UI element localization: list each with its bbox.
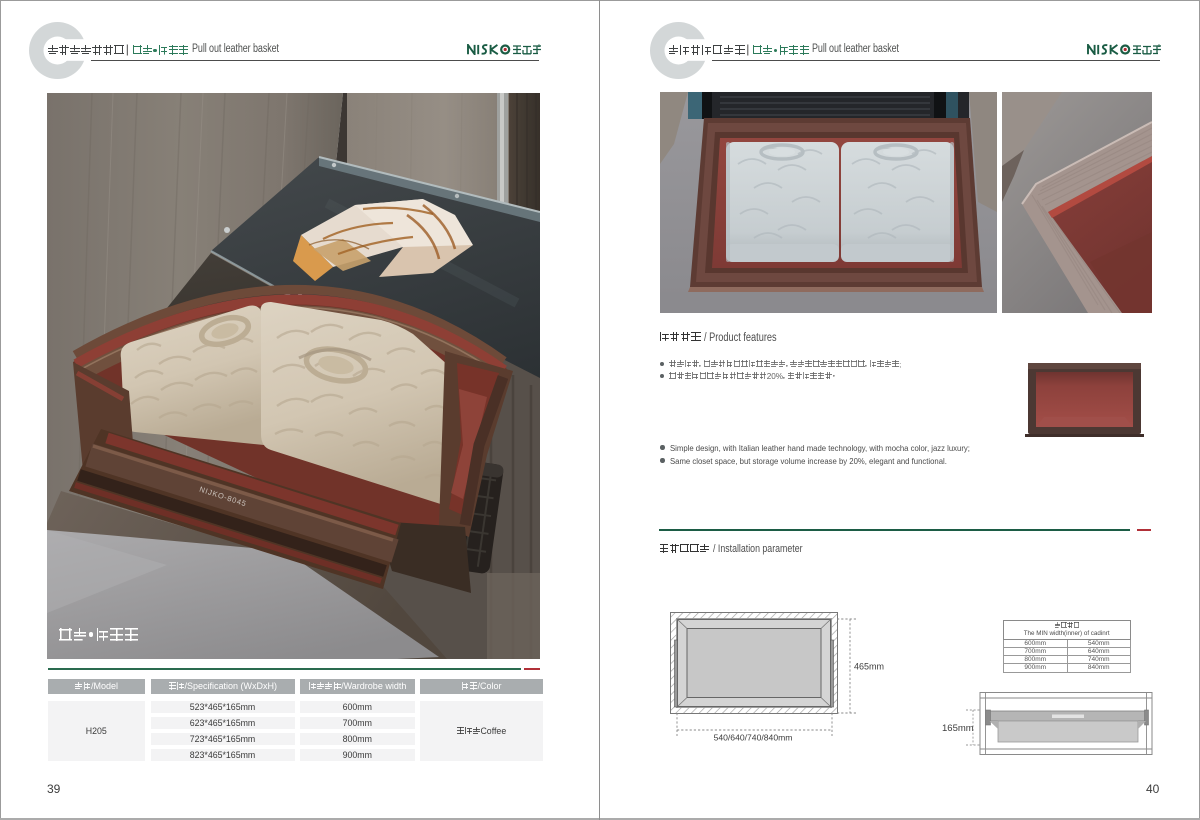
svg-text:465mm: 465mm <box>854 662 884 672</box>
svg-text:165mm: 165mm <box>942 723 974 734</box>
svg-text:540/640/740/840mm: 540/640/740/840mm <box>714 733 793 743</box>
